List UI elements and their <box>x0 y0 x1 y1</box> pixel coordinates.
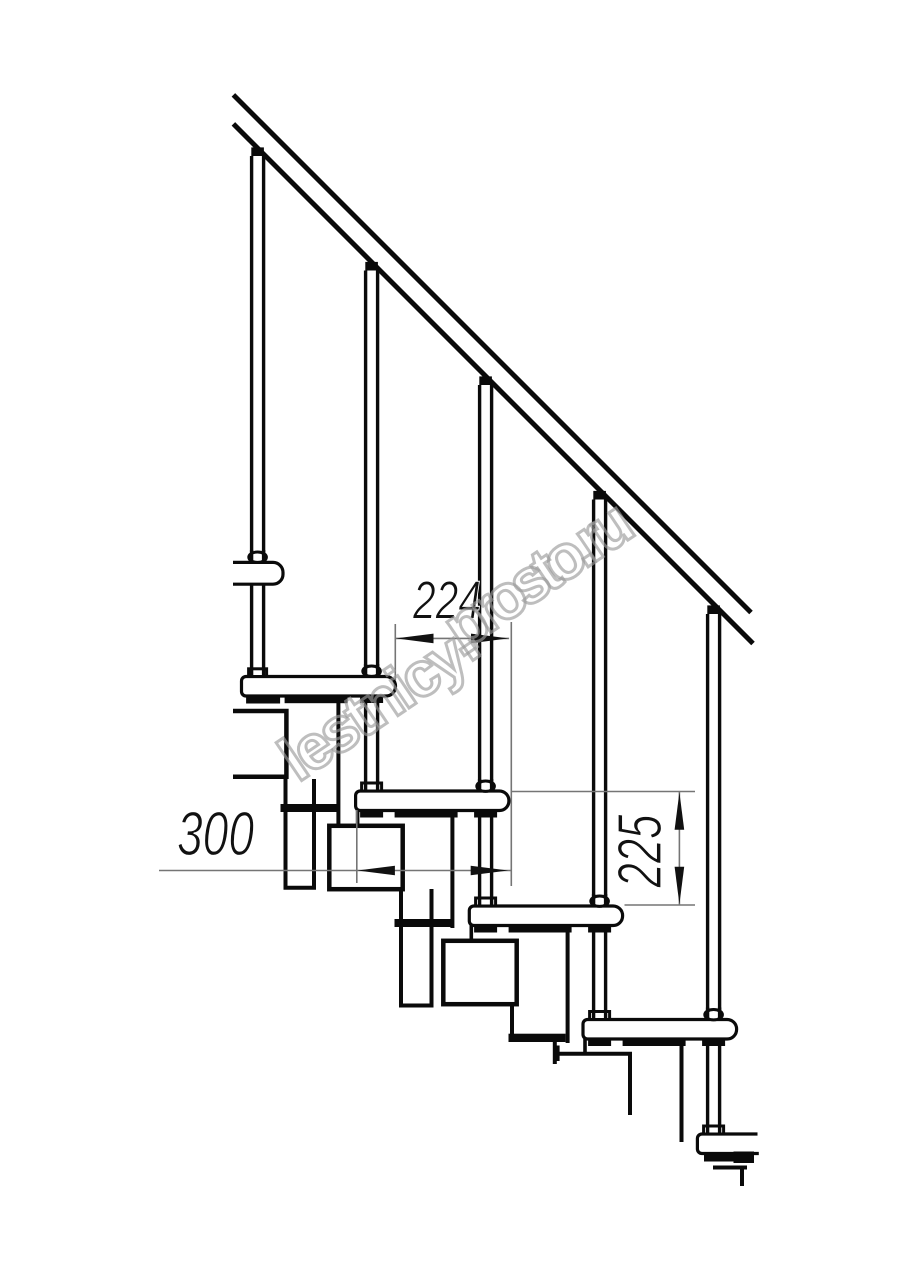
svg-text:225: 225 <box>606 814 675 888</box>
svg-text:300: 300 <box>177 800 254 869</box>
